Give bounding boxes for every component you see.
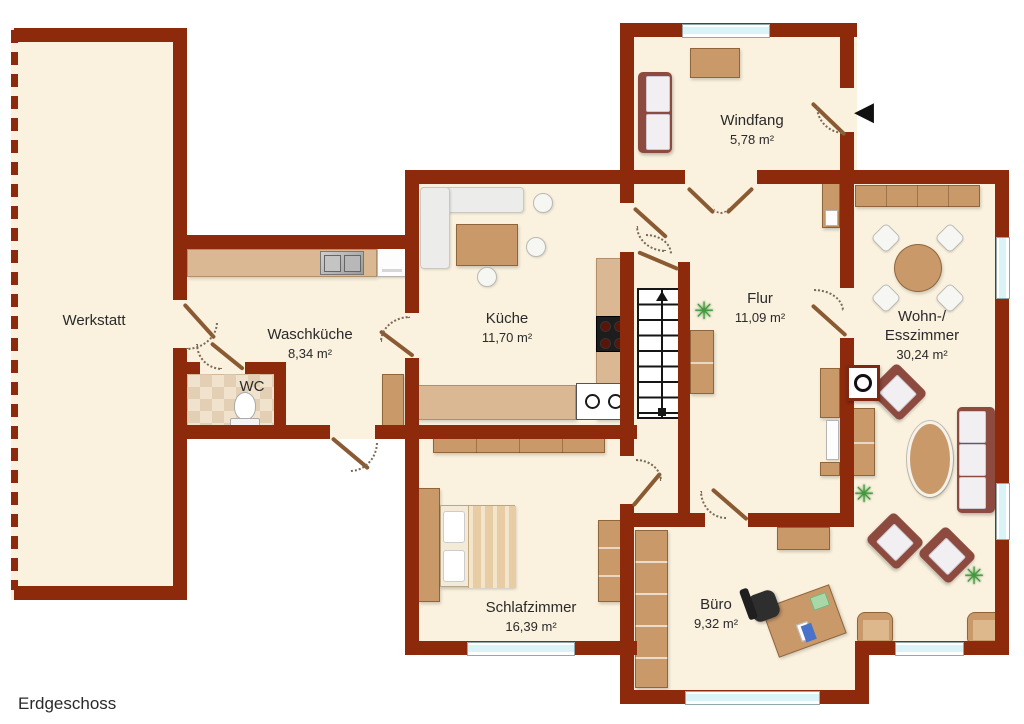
room-label-wohn-esszimmer: Wohn-/ Esszimmer 30,24 m² — [857, 308, 987, 362]
flur-cabinet-mid — [820, 368, 840, 418]
wall — [840, 132, 854, 288]
room-name: Werkstatt — [34, 312, 154, 331]
room-name: Büro — [656, 596, 776, 615]
entrance-arrow-icon: ◀ — [854, 98, 874, 124]
kueche-chair — [526, 237, 546, 257]
window-wohnzimmer-upper — [996, 237, 1010, 299]
wohnzimmer-wood-stove — [846, 365, 880, 401]
kueche-table — [456, 224, 518, 266]
plant-icon: ✳ — [964, 565, 984, 589]
wall-dashed — [11, 30, 18, 590]
wall — [620, 23, 634, 203]
room-name: Waschküche — [250, 326, 370, 345]
room-name: Küche — [447, 310, 567, 329]
buero-sideboard — [777, 527, 830, 550]
window-schlafzimmer — [467, 642, 575, 656]
waschkueche-cabinet — [382, 374, 404, 426]
wall — [405, 358, 419, 655]
room-label-wc: WC — [228, 378, 276, 397]
windfang-doormat — [690, 48, 740, 78]
window-windfang — [682, 24, 770, 38]
kueche-corner-bench-side — [420, 187, 450, 269]
room-area: 30,24 m² — [857, 347, 987, 362]
schlafzimmer-bed — [440, 505, 515, 587]
kueche-chair — [477, 267, 497, 287]
waschkueche-washing-machine — [377, 247, 406, 277]
room-area: 16,39 m² — [471, 619, 591, 634]
wall — [405, 170, 685, 184]
wall — [757, 170, 1009, 184]
room-area: 11,70 m² — [447, 330, 567, 345]
room-label-kueche: Küche 11,70 m² — [447, 310, 567, 345]
flur-sideboard — [690, 330, 714, 394]
room-label-buero: Büro 9,32 m² — [656, 596, 776, 631]
wall — [173, 348, 187, 600]
wall — [620, 252, 634, 456]
wall — [187, 425, 330, 439]
door-kueche-garten-swing — [350, 442, 378, 472]
wall — [173, 28, 187, 300]
wall — [187, 362, 200, 374]
kueche-counter-bottom — [418, 385, 576, 420]
plant-icon: ✳ — [854, 483, 874, 507]
room-label-schlafzimmer: Schlafzimmer 16,39 m² — [471, 599, 591, 634]
wohnzimmer-chair-bottom — [857, 612, 893, 642]
window-buero — [685, 691, 820, 705]
wohnzimmer-sofa — [957, 407, 995, 513]
staircase-start-marker — [658, 408, 666, 416]
window-wohnzimmer-lower — [996, 483, 1010, 540]
floorplan-erdgeschoss: ◀ ✳ — [0, 0, 1024, 724]
flur-cabinet-low — [820, 462, 840, 476]
room-name: WC — [228, 378, 276, 397]
room-area: 8,34 m² — [250, 346, 370, 361]
wall — [405, 170, 419, 313]
room-name: Windfang — [692, 112, 812, 131]
wall — [14, 28, 186, 42]
schlafzimmer-headboard — [418, 488, 440, 602]
flur-shelf-top — [825, 210, 838, 226]
wall — [187, 235, 419, 249]
door-windfang-flur-swing — [713, 196, 729, 214]
kueche-chair — [533, 193, 553, 213]
wall — [620, 504, 634, 704]
room-area: 11,09 m² — [700, 310, 820, 325]
wall — [14, 586, 186, 600]
room-name: Schlafzimmer — [471, 599, 591, 618]
window-wohnzimmer-bottom — [895, 642, 964, 656]
wall — [840, 23, 854, 88]
waschkueche-sink — [320, 251, 364, 275]
flur-radiator — [826, 420, 839, 460]
wall — [620, 513, 705, 527]
staircase-up-arrow-icon — [656, 291, 668, 301]
esszimmer-round-table — [894, 244, 942, 292]
room-area: 5,78 m² — [692, 132, 812, 147]
wohnzimmer-coffee-table — [907, 421, 953, 497]
floor-title: Erdgeschoss — [18, 694, 116, 714]
room-name: Flur — [700, 290, 820, 309]
wall — [678, 262, 690, 513]
wall — [748, 513, 854, 527]
staircase-direction-line — [661, 290, 663, 417]
schlafzimmer-dresser — [598, 520, 622, 602]
room-label-flur: Flur 11,09 m² — [700, 290, 820, 325]
room-label-waschkueche: Waschküche 8,34 m² — [250, 326, 370, 361]
wall — [274, 362, 286, 437]
room-area: 9,32 m² — [656, 616, 776, 631]
room-label-windfang: Windfang 5,78 m² — [692, 112, 812, 147]
room-name: Wohn-/ Esszimmer — [857, 308, 987, 346]
windfang-bench — [638, 72, 672, 153]
wohnzimmer-sideboard — [855, 185, 980, 207]
wood-stove-ring — [854, 374, 872, 392]
room-label-werkstatt: Werkstatt — [34, 312, 154, 332]
